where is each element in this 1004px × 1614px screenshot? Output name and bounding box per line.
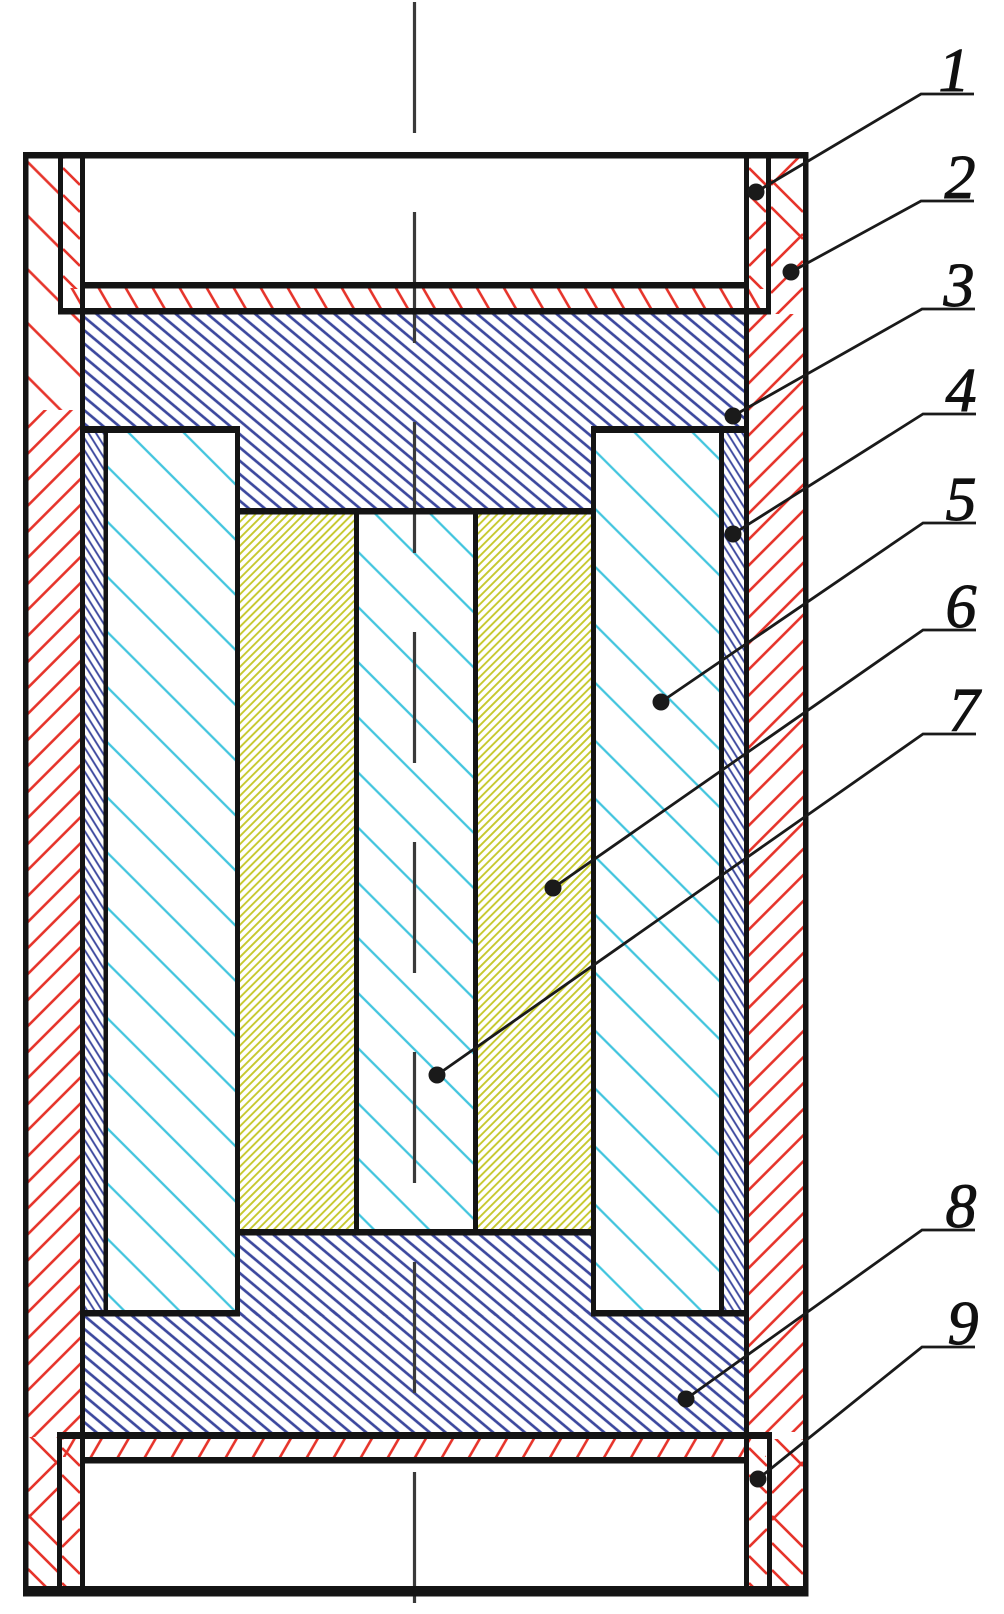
svg-text:1: 1 xyxy=(939,37,970,105)
svg-text:5: 5 xyxy=(946,466,977,534)
svg-text:7: 7 xyxy=(949,677,983,745)
svg-text:8: 8 xyxy=(946,1173,977,1241)
svg-text:9: 9 xyxy=(948,1290,979,1358)
svg-text:3: 3 xyxy=(943,252,975,320)
svg-text:2: 2 xyxy=(945,144,976,212)
svg-text:4: 4 xyxy=(946,357,977,425)
svg-text:6: 6 xyxy=(946,573,977,641)
